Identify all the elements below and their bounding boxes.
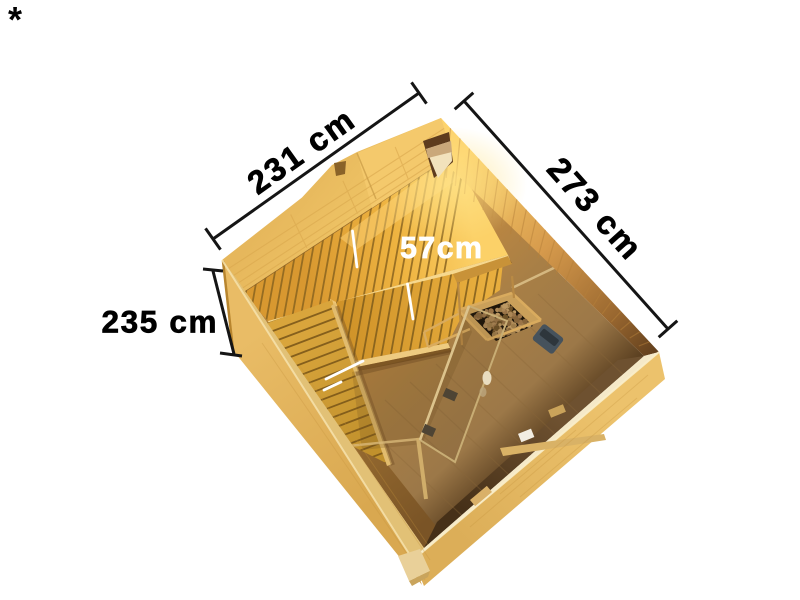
svg-text:57cm: 57cm: [400, 231, 482, 265]
svg-text:235 cm: 235 cm: [102, 304, 217, 340]
